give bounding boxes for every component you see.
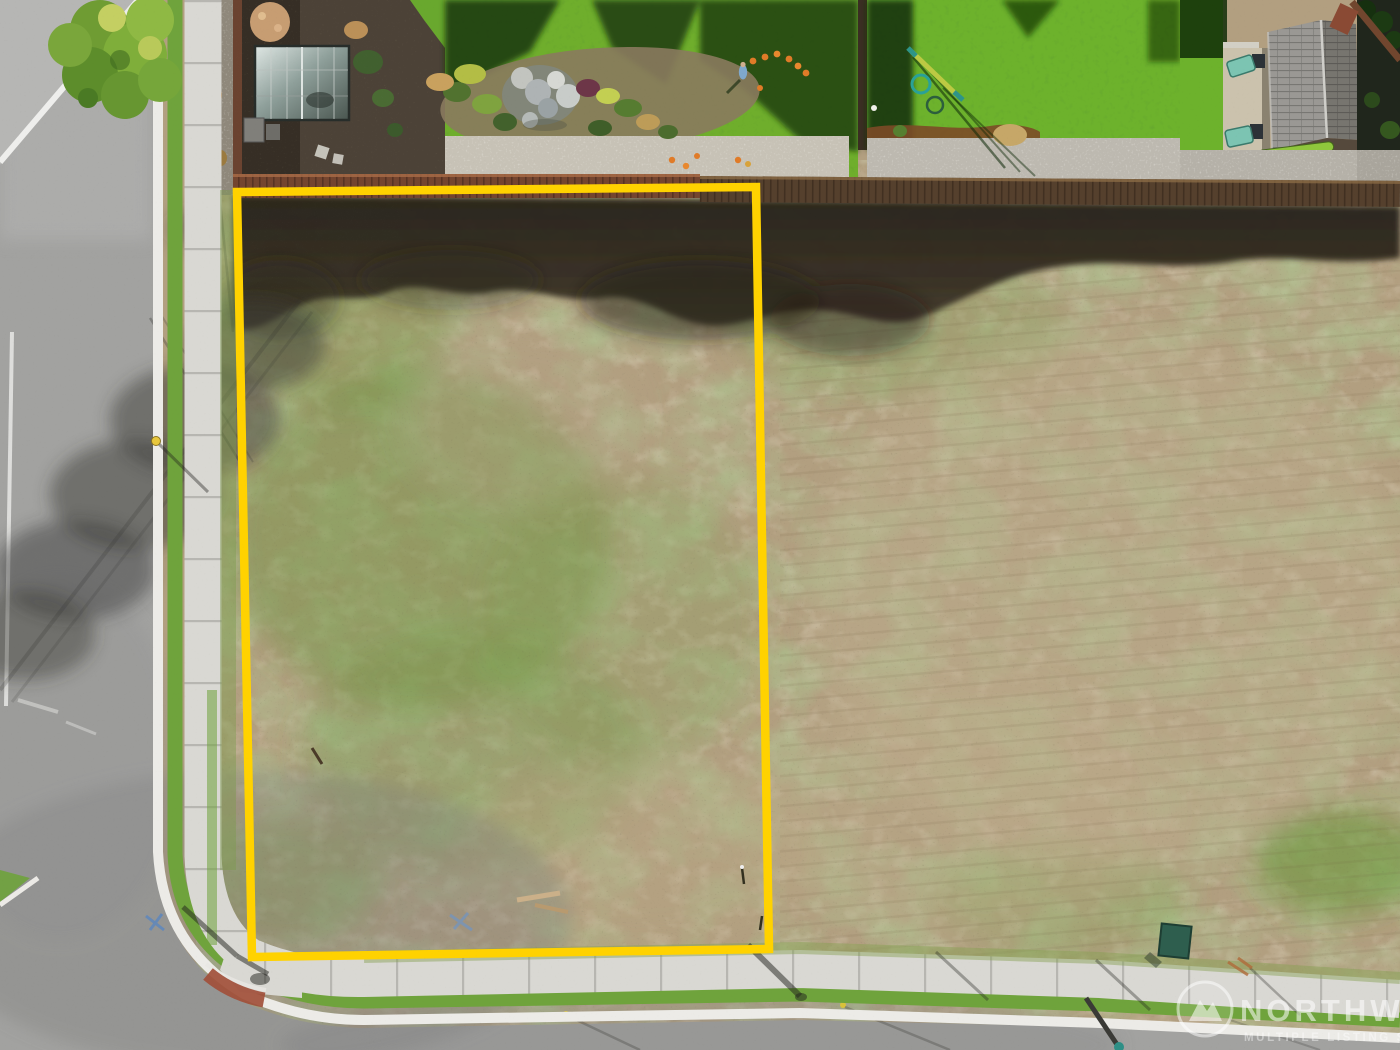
aerial-photo-canvas: NORTHWEST MULTIPLE LISTING SERVICE: [0, 0, 1400, 1050]
watermark-brand: NORTHWEST: [1240, 993, 1400, 1028]
watermark-tagline: MULTIPLE LISTING SERVICE: [1244, 1032, 1400, 1044]
watermark-logo-icon: [1178, 982, 1232, 1036]
aerial-photo: NORTHWEST MULTIPLE LISTING SERVICE: [0, 0, 1400, 1050]
photo-grain: [0, 0, 1400, 1050]
